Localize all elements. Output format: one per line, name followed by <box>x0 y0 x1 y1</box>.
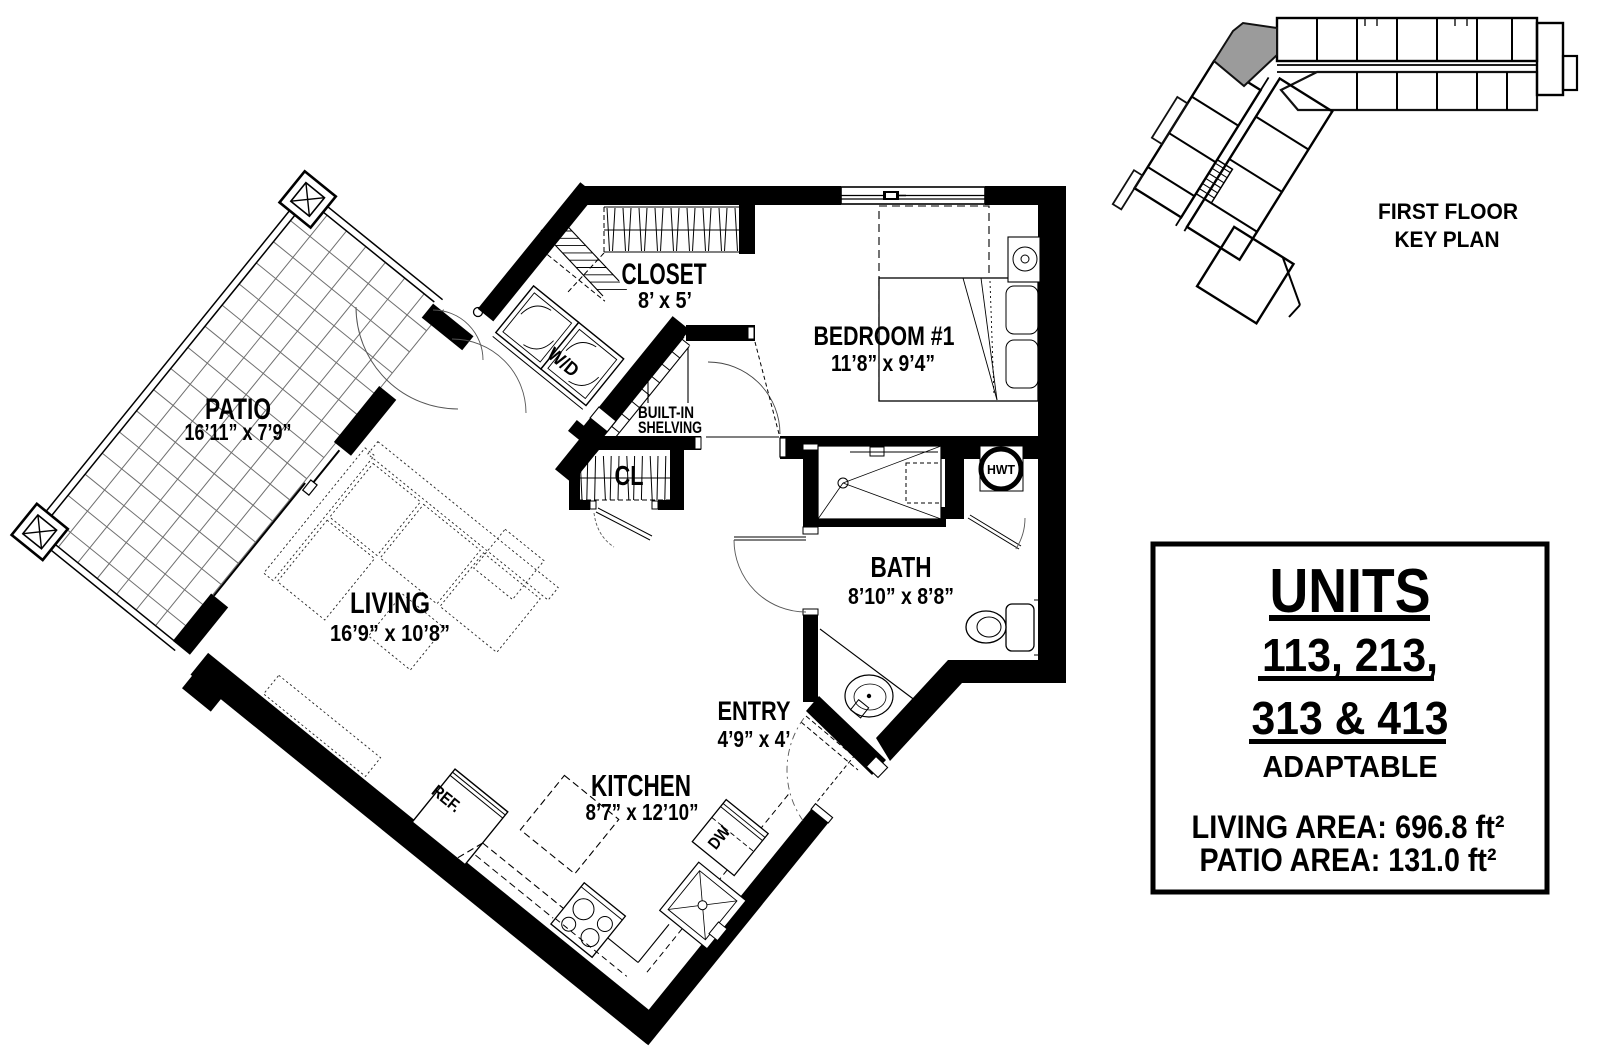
svg-text:LIVING AREA: 696.8 ft²: LIVING AREA: 696.8 ft² <box>1192 809 1505 845</box>
svg-text:4’9” x 4’: 4’9” x 4’ <box>718 726 791 752</box>
svg-text:8’ x 5’: 8’ x 5’ <box>638 287 692 313</box>
svg-text:16’11” x 7’9”: 16’11” x 7’9” <box>185 419 292 445</box>
svg-text:BEDROOM #1: BEDROOM #1 <box>814 321 955 351</box>
svg-text:16’9” x 10’8”: 16’9” x 10’8” <box>330 620 450 646</box>
svg-text:KEY PLAN: KEY PLAN <box>1395 227 1500 252</box>
svg-text:11’8” x 9’4”: 11’8” x 9’4” <box>831 350 935 376</box>
svg-text:ADAPTABLE: ADAPTABLE <box>1263 749 1438 784</box>
svg-text:HWT: HWT <box>987 463 1015 477</box>
svg-text:CL: CL <box>615 460 644 491</box>
svg-text:8’7” x 12’10”: 8’7” x 12’10” <box>586 799 699 825</box>
svg-text:BATH: BATH <box>871 552 932 584</box>
svg-text:PATIO AREA: 131.0 ft²: PATIO AREA: 131.0 ft² <box>1200 842 1497 878</box>
svg-text:8’10” x 8’8”: 8’10” x 8’8” <box>848 583 954 609</box>
svg-text:KITCHEN: KITCHEN <box>591 768 691 803</box>
svg-text:SHELVING: SHELVING <box>638 418 702 437</box>
svg-text:113, 213,: 113, 213, <box>1262 629 1438 681</box>
svg-text:FIRST FLOOR: FIRST FLOOR <box>1378 199 1518 224</box>
svg-text:313 & 413: 313 & 413 <box>1252 692 1449 744</box>
svg-text:LIVING: LIVING <box>350 587 430 620</box>
svg-text:ENTRY: ENTRY <box>718 696 791 726</box>
